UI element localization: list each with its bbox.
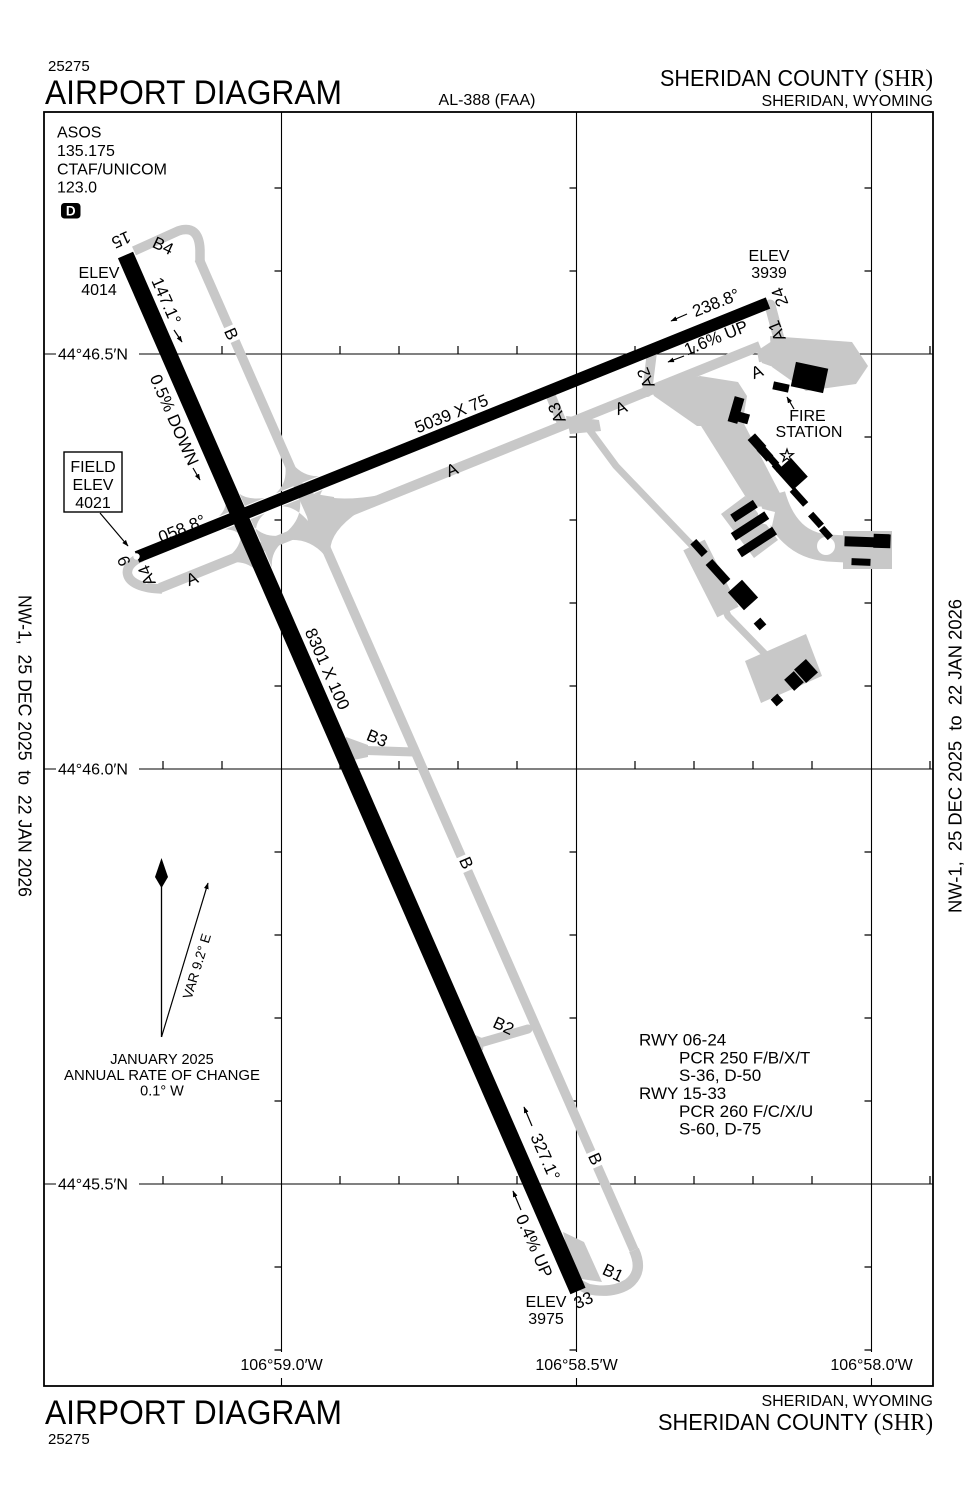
svg-text:ANNUAL RATE OF CHANGE: ANNUAL RATE OF CHANGE (64, 1068, 260, 1084)
svg-text:CTAF/UNICOM: CTAF/UNICOM (57, 162, 167, 179)
svg-text:3939: 3939 (751, 265, 787, 282)
svg-text:S-36, D-50: S-36, D-50 (679, 1066, 761, 1085)
svg-text:JANUARY 2025: JANUARY 2025 (110, 1052, 213, 1068)
svg-text:PCR 260 F/C/X/U: PCR 260 F/C/X/U (679, 1102, 813, 1121)
svg-text:SHERIDAN COUNTY (SHR): SHERIDAN COUNTY (SHR) (658, 1409, 933, 1436)
svg-text:44°45.5′N: 44°45.5′N (58, 1177, 128, 1194)
svg-text:25275: 25275 (48, 1431, 90, 1448)
svg-text:NW-1, 25 DEC 2025 to 22 JAN: NW-1, 25 DEC 2025 to 22 JAN 2026 (15, 595, 35, 897)
svg-text:135.175: 135.175 (57, 143, 115, 160)
svg-text:NW-1, 25 DEC 2025 to 22 JAN: NW-1, 25 DEC 2025 to 22 JAN 2026 (946, 599, 966, 913)
svg-text:44°46.0′N: 44°46.0′N (58, 762, 128, 779)
svg-text:AIRPORT DIAGRAM: AIRPORT DIAGRAM (45, 74, 342, 112)
svg-text:SHERIDAN COUNTY (SHR): SHERIDAN COUNTY (SHR) (660, 65, 933, 92)
svg-text:0.1° W: 0.1° W (140, 1084, 184, 1100)
svg-text:SHERIDAN, WYOMING: SHERIDAN, WYOMING (761, 93, 933, 110)
svg-text:FIELD: FIELD (70, 459, 115, 476)
svg-text:ELEV: ELEV (79, 265, 120, 282)
svg-text:PCR 250 F/B/X/T: PCR 250 F/B/X/T (679, 1049, 810, 1068)
svg-text:STATION: STATION (776, 424, 843, 441)
svg-text:D: D (66, 204, 76, 219)
svg-text:4014: 4014 (81, 282, 117, 299)
svg-text:3975: 3975 (528, 1311, 564, 1328)
svg-text:RWY 15-33: RWY 15-33 (639, 1084, 726, 1103)
svg-text:ASOS: ASOS (57, 125, 101, 142)
svg-text:RWY 06-24: RWY 06-24 (639, 1031, 726, 1050)
svg-text:106°58.5′W: 106°58.5′W (535, 1357, 618, 1374)
svg-text:4021: 4021 (75, 495, 111, 512)
svg-text:106°58.0′W: 106°58.0′W (830, 1357, 913, 1374)
svg-text:AIRPORT DIAGRAM: AIRPORT DIAGRAM (45, 1394, 342, 1432)
svg-text:SHERIDAN, WYOMING: SHERIDAN, WYOMING (761, 1393, 933, 1410)
svg-text:25275: 25275 (48, 58, 90, 75)
svg-text:S-60, D-75: S-60, D-75 (679, 1120, 761, 1139)
svg-text:106°59.0′W: 106°59.0′W (240, 1357, 323, 1374)
svg-text:ELEV: ELEV (749, 248, 790, 265)
svg-text:44°46.5′N: 44°46.5′N (58, 347, 128, 364)
svg-text:ELEV: ELEV (73, 477, 114, 494)
svg-text:AL-388 (FAA): AL-388 (FAA) (439, 92, 536, 109)
svg-text:ELEV: ELEV (526, 1294, 567, 1311)
svg-text:123.0: 123.0 (57, 180, 97, 197)
svg-text:FIRE: FIRE (789, 408, 825, 425)
